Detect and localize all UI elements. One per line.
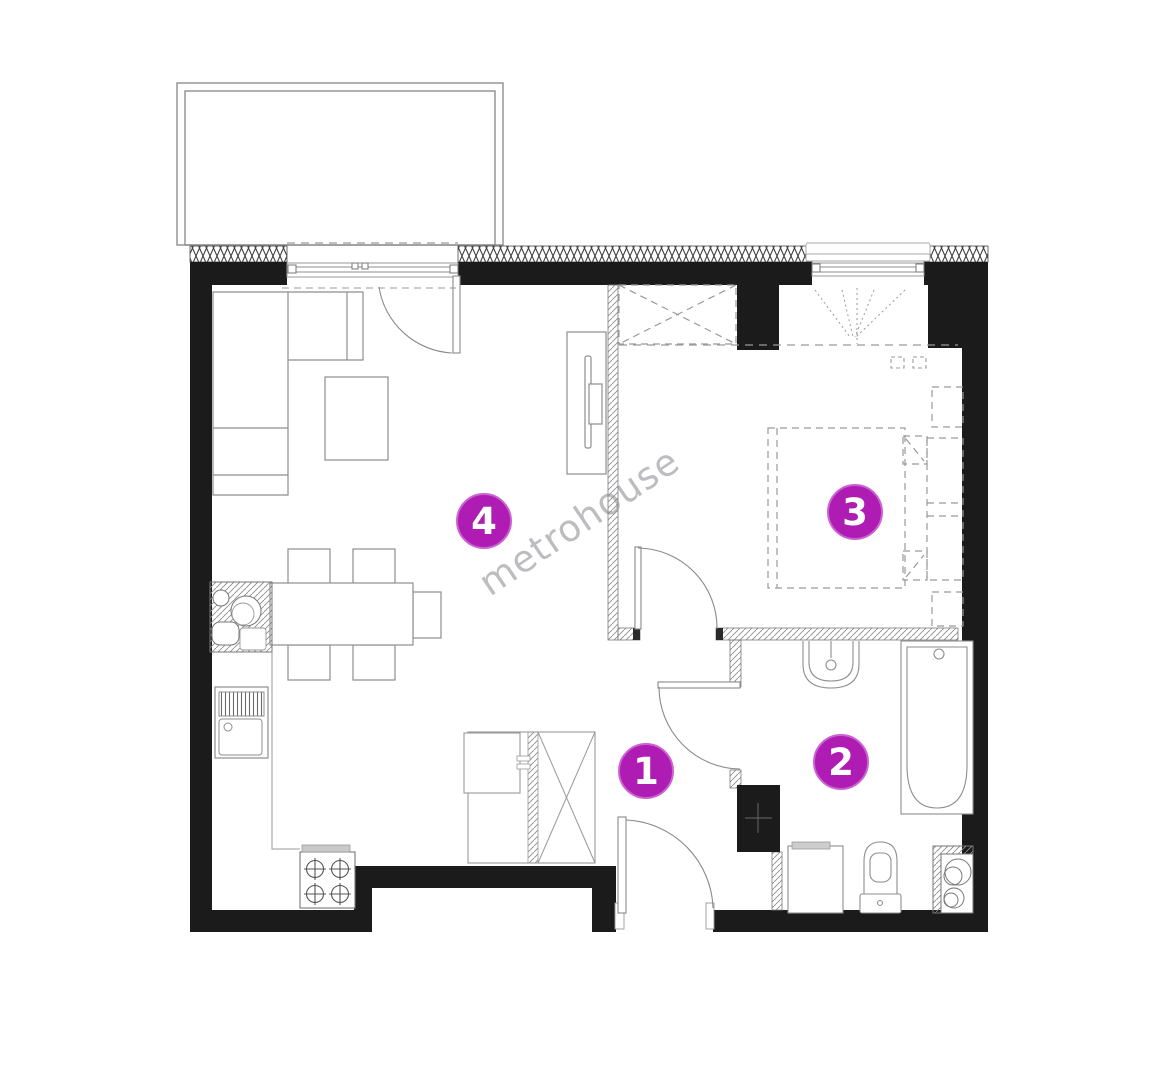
room-marker-4: 4 — [457, 494, 511, 548]
bathtub — [901, 641, 973, 814]
bedroom-window — [812, 263, 924, 276]
wardrobe-bracket-marks — [891, 357, 926, 368]
kitchen-sink — [210, 582, 272, 652]
toilet — [860, 842, 901, 913]
curtain-fan-lines — [815, 288, 905, 344]
bedroom-wardrobe — [619, 285, 736, 344]
entrance-door — [615, 817, 714, 929]
tv-unit — [567, 332, 606, 474]
room-marker-1: 1 — [619, 744, 673, 798]
bedroom-side-units — [927, 387, 963, 626]
bathroom-cabinet — [788, 842, 843, 913]
balcony-window — [287, 263, 458, 277]
room-marker-2-label: 2 — [828, 741, 854, 784]
room-marker-1-label: 1 — [633, 750, 659, 793]
washbasin — [803, 641, 859, 688]
floor-plan-image: metrohouse 1 2 3 4 — [0, 0, 1164, 1080]
room-marker-4-label: 4 — [471, 500, 497, 543]
stove — [300, 845, 355, 908]
kitchen-counter-line — [272, 652, 300, 849]
room-marker-3-label: 3 — [842, 491, 868, 534]
bedroom-door — [635, 547, 717, 629]
room-marker-2: 2 — [814, 735, 868, 789]
dining-table-set — [270, 549, 441, 680]
corner-washer-unit — [933, 846, 973, 913]
hallway-wardrobe — [464, 732, 595, 863]
partition-walls — [608, 285, 958, 910]
door-jambs — [633, 628, 723, 640]
coffee-table — [325, 377, 388, 460]
kitchen-appliance — [215, 687, 268, 758]
utility-shaft — [737, 785, 780, 852]
balcony — [177, 83, 503, 245]
floor-plan-page: metrohouse 1 2 3 4 — [0, 0, 1164, 1080]
bathroom-door — [658, 682, 740, 769]
bedroom-window-sill — [806, 243, 930, 261]
room-marker-3: 3 — [828, 485, 882, 539]
